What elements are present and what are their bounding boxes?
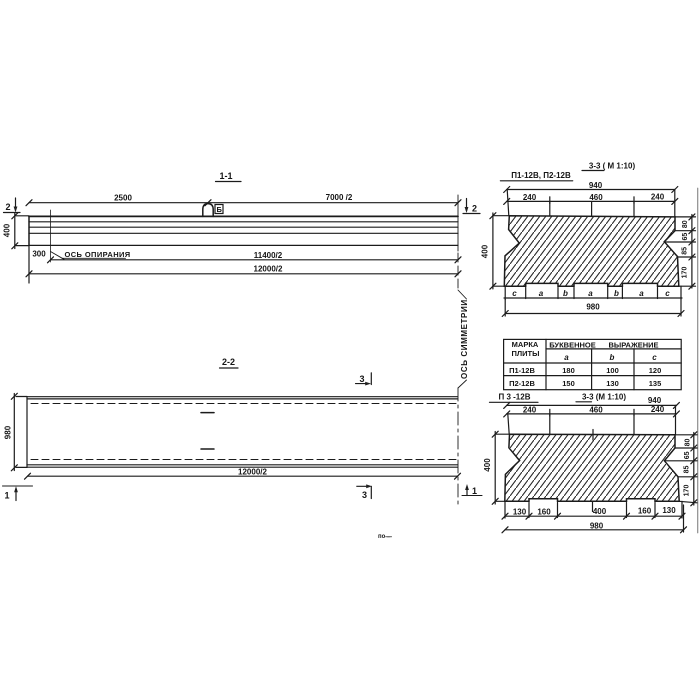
svg-text:980: 980 [590, 521, 604, 530]
svg-text:240: 240 [651, 405, 665, 414]
svg-text:2-2: 2-2 [222, 357, 235, 367]
svg-text:12000/2: 12000/2 [238, 468, 267, 477]
svg-text:c: c [665, 289, 670, 298]
svg-text:Б: Б [217, 205, 223, 214]
svg-text:7000 /2: 7000 /2 [326, 193, 353, 202]
svg-text:80: 80 [684, 439, 691, 447]
svg-text:11400/2: 11400/2 [254, 251, 283, 260]
svg-text:170: 170 [682, 267, 689, 279]
svg-text:170: 170 [683, 485, 690, 497]
svg-text:240: 240 [651, 193, 665, 202]
svg-text:ОСЬ ОПИРАНИЯ: ОСЬ ОПИРАНИЯ [65, 250, 131, 259]
svg-text:980: 980 [4, 425, 13, 439]
svg-text:3: 3 [362, 490, 367, 500]
svg-text:460: 460 [589, 193, 603, 202]
svg-text:100: 100 [606, 366, 619, 375]
svg-text:1: 1 [472, 486, 477, 496]
svg-text:460: 460 [589, 406, 603, 415]
svg-text:П1-12В: П1-12В [509, 366, 535, 375]
svg-text:c: c [512, 289, 517, 298]
svg-text:150: 150 [562, 379, 575, 388]
svg-text:c: c [652, 353, 657, 362]
svg-text:240: 240 [523, 193, 537, 202]
svg-text:b: b [610, 353, 615, 362]
svg-text:3-3 ( М 1:10): 3-3 ( М 1:10) [589, 162, 636, 171]
svg-text:a: a [564, 353, 569, 362]
svg-text:940: 940 [648, 396, 662, 405]
svg-text:b: b [614, 289, 619, 298]
svg-text:180: 180 [562, 366, 575, 375]
svg-text:1: 1 [4, 491, 9, 501]
svg-text:ОСЬ СИММЕТРИИ: ОСЬ СИММЕТРИИ [460, 299, 469, 379]
svg-text:400: 400 [3, 223, 12, 237]
svg-text:a: a [639, 289, 644, 298]
svg-text:300: 300 [32, 250, 46, 259]
svg-text:a: a [539, 289, 544, 298]
svg-text:130: 130 [513, 507, 527, 516]
svg-text:2500: 2500 [114, 194, 132, 203]
svg-text:П1-12В, П2-12В: П1-12В, П2-12В [511, 171, 571, 180]
svg-text:a: a [588, 289, 593, 298]
svg-text:2: 2 [472, 204, 477, 214]
svg-text:120: 120 [649, 366, 662, 375]
svg-text:130: 130 [662, 506, 676, 515]
svg-text:160: 160 [537, 507, 551, 516]
svg-text:65: 65 [684, 451, 691, 459]
svg-text:3-3 (М 1:10): 3-3 (М 1:10) [582, 393, 626, 402]
svg-text:980: 980 [586, 303, 600, 312]
svg-text:П2-12В: П2-12В [509, 379, 535, 388]
svg-text:85: 85 [683, 466, 690, 474]
svg-text:65: 65 [682, 233, 689, 241]
svg-text:по ̶ ̶ ̶: по ̶ ̶ ̶ [378, 534, 392, 540]
svg-text:80: 80 [682, 220, 689, 228]
svg-text:160: 160 [638, 507, 652, 516]
svg-text:940: 940 [589, 181, 603, 190]
svg-text:3: 3 [359, 374, 364, 384]
svg-text:400: 400 [593, 507, 607, 516]
svg-text:БУКВЕННОЕ: БУКВЕННОЕ [549, 341, 596, 350]
svg-text:130: 130 [606, 379, 619, 388]
svg-text:240: 240 [523, 406, 537, 415]
svg-text:400: 400 [481, 244, 490, 258]
svg-text:ПЛИТЫ: ПЛИТЫ [512, 349, 540, 358]
svg-text:2: 2 [5, 202, 10, 212]
svg-text:1-1: 1-1 [219, 171, 232, 181]
svg-text:П 3 -12В: П 3 -12В [499, 393, 531, 402]
svg-text:ВЫРАЖЕНИЕ: ВЫРАЖЕНИЕ [608, 341, 658, 350]
svg-text:85: 85 [682, 247, 689, 255]
svg-text:b: b [563, 289, 568, 298]
svg-text:МАРКА: МАРКА [512, 340, 539, 349]
svg-text:400: 400 [483, 458, 492, 472]
svg-text:135: 135 [649, 379, 662, 388]
svg-text:12000/2: 12000/2 [254, 265, 283, 274]
